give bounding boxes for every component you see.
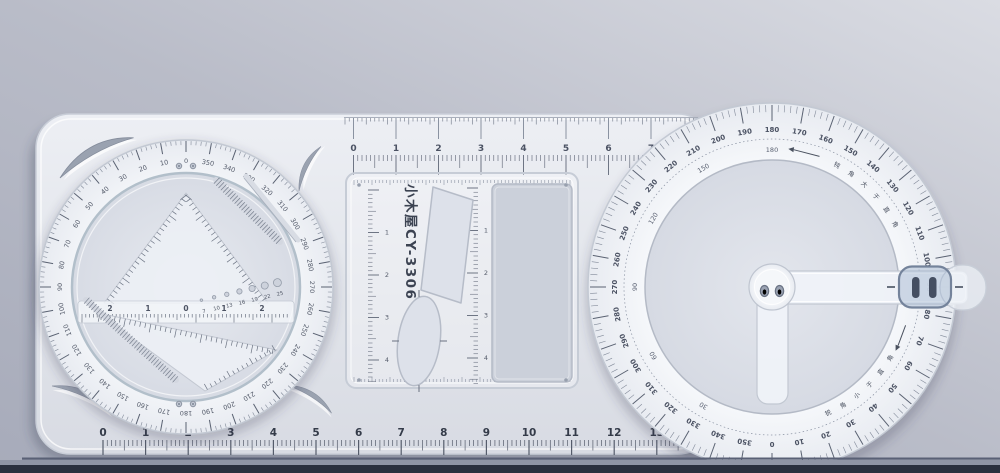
svg-text:2: 2 [435,144,441,154]
svg-text:3: 3 [484,312,488,320]
svg-text:10: 10 [159,158,169,167]
svg-text:10: 10 [522,427,537,439]
svg-text:1: 1 [393,144,399,154]
svg-text:2: 2 [484,269,488,277]
svg-text:1: 1 [484,227,488,235]
svg-text:4: 4 [385,356,389,364]
svg-text:4: 4 [520,144,526,154]
rectangle-window [492,184,572,382]
svg-text:80: 80 [922,309,932,320]
svg-text:7: 7 [398,427,405,439]
svg-text:180: 180 [766,146,778,154]
svg-text:10: 10 [794,437,805,447]
svg-text:8: 8 [440,427,447,439]
svg-text:1: 1 [145,304,150,313]
svg-text:3: 3 [478,144,484,154]
svg-text:4: 4 [484,354,488,362]
svg-text:2: 2 [385,271,389,279]
svg-text:2: 2 [107,304,112,313]
left-rotating-dial[interactable]: 0102030405060708090100110120130140150160… [36,140,336,442]
svg-text:0: 0 [350,144,356,154]
svg-text:180: 180 [765,126,780,134]
svg-text:12: 12 [607,427,622,439]
svg-text:6: 6 [605,144,611,154]
svg-text:270: 270 [611,280,619,295]
svg-text:9: 9 [483,427,490,439]
svg-text:180: 180 [180,409,192,417]
svg-text:90: 90 [56,283,64,291]
ruler-photo: 01234567 012345678910111213 12341234小木屋C… [0,0,1000,473]
svg-text:1: 1 [385,229,389,237]
svg-text:6: 6 [355,427,362,439]
svg-text:0: 0 [183,304,188,313]
svg-text:0: 0 [184,157,188,165]
svg-text:5: 5 [563,144,569,154]
svg-text:80: 80 [57,260,66,270]
stencil-panel: 12341234小木屋CY-3306 [346,173,578,392]
svg-text:0: 0 [99,427,106,439]
svg-text:0: 0 [769,440,774,448]
svg-text:90: 90 [631,283,639,291]
svg-text:3: 3 [385,314,389,322]
svg-text:4: 4 [270,427,277,439]
svg-text:270: 270 [308,281,316,293]
brand-text: 小木屋CY-3306 [402,184,419,300]
pivot-button[interactable] [749,264,795,310]
svg-text:2: 2 [259,304,264,313]
svg-text:5: 5 [312,427,319,439]
svg-text:11: 11 [564,427,579,439]
